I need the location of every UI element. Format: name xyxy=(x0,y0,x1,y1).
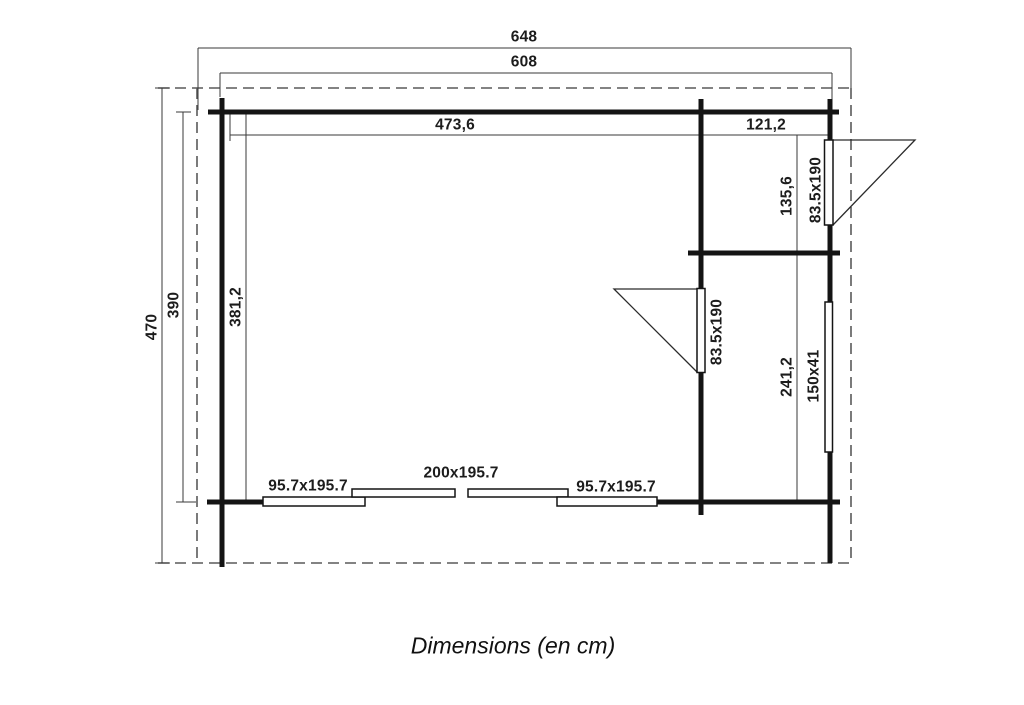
openings xyxy=(263,140,833,506)
dim-overall-width-label: 648 xyxy=(511,29,537,45)
dim-annex-depth-label: 135,6 xyxy=(779,176,795,216)
dim-annex-width-label: 121,2 xyxy=(746,117,786,133)
front-center-door-size-label: 200x195.7 xyxy=(423,465,498,481)
dim-rear-right-depth-label: 241,2 xyxy=(779,357,795,397)
brand-logo: ma Mon Aménagement JARDIN www.monamenage… xyxy=(0,645,160,703)
window-size-label: 150x41 xyxy=(806,350,822,403)
annex-door-swing xyxy=(833,140,915,225)
front-door-panel-center-left xyxy=(352,489,455,497)
front-door-panel-center-right xyxy=(468,489,568,497)
dim-interior-depth-label: 381,2 xyxy=(228,287,244,327)
interior-door-size-label: 83.5x190 xyxy=(709,299,725,365)
front-door-panel-left xyxy=(263,497,365,506)
plan-caption: Dimensions (en cm) xyxy=(411,633,616,660)
annex-door-size-label: 83.5x190 xyxy=(808,157,824,223)
floor-plan-page: 648 608 473,6 121,2 470 390 381,2 135,6 … xyxy=(0,0,1024,705)
interior-door-leaf xyxy=(697,289,705,373)
front-right-door-size-label: 95.7x195.7 xyxy=(576,479,656,495)
dim-overall-depth-label: 470 xyxy=(144,314,160,340)
dim-wall-depth-label: 390 xyxy=(166,292,182,318)
right-window xyxy=(825,302,833,452)
annex-door-leaf xyxy=(825,140,834,225)
floor-plan-drawing xyxy=(0,0,1024,705)
front-door-panel-right xyxy=(557,497,657,506)
dim-main-room-width-label: 473,6 xyxy=(435,117,475,133)
door-swings xyxy=(614,140,915,372)
front-left-door-size-label: 95.7x195.7 xyxy=(268,478,348,494)
dim-wall-width-label: 608 xyxy=(511,54,537,70)
interior-door-swing xyxy=(614,289,697,372)
